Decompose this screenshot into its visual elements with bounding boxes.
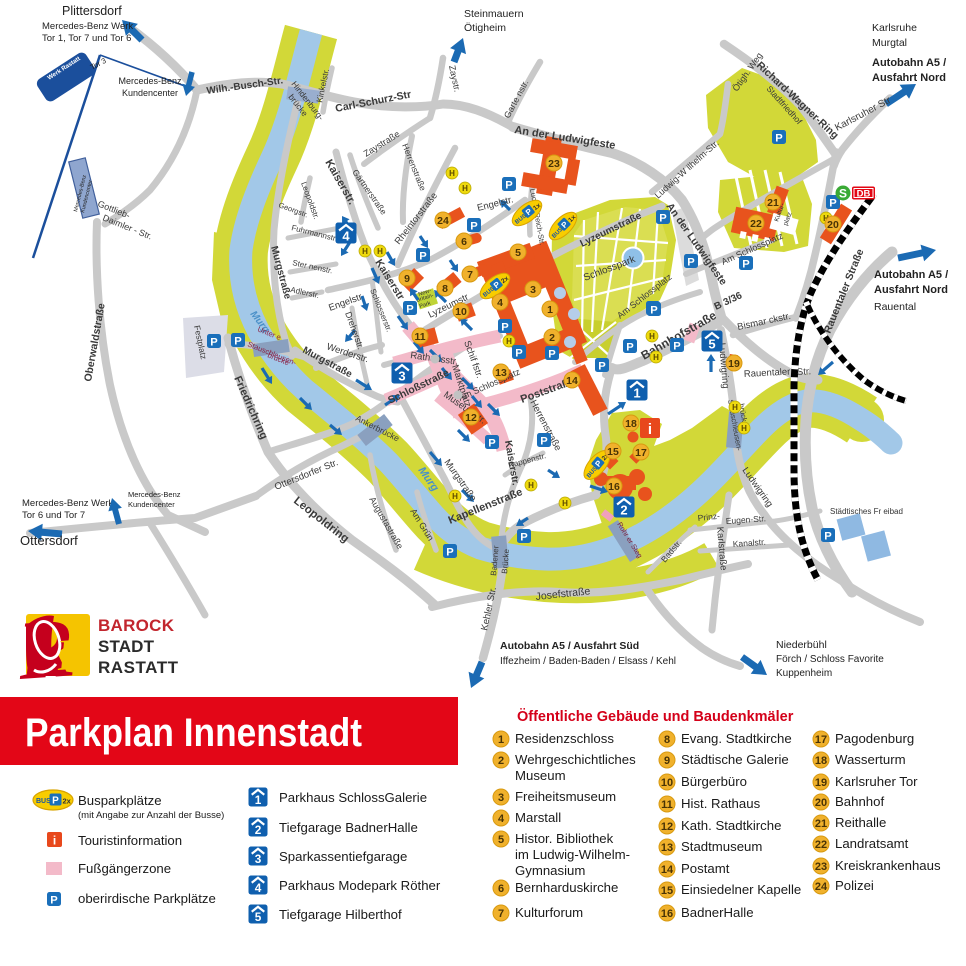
svg-text:17: 17 (815, 734, 827, 746)
svg-text:Ötigheim: Ötigheim (464, 22, 506, 34)
svg-text:P: P (419, 250, 427, 262)
svg-text:Marstall: Marstall (515, 810, 561, 825)
svg-text:21: 21 (767, 197, 779, 209)
svg-text:Mercedes-Benz: Mercedes-Benz (118, 76, 182, 86)
svg-text:P: P (829, 197, 837, 209)
svg-text:Plittersdorf: Plittersdorf (62, 4, 122, 18)
svg-text:Mercedes-Benz Werk: Mercedes-Benz Werk (42, 21, 133, 32)
svg-text:Städtisches Fr eibad: Städtisches Fr eibad (830, 507, 903, 516)
svg-text:Karlsruher Tor: Karlsruher Tor (835, 774, 918, 789)
svg-text:P: P (548, 348, 556, 360)
svg-text:18: 18 (625, 418, 637, 430)
svg-text:Steinmauern: Steinmauern (464, 8, 524, 20)
svg-text:Landratsamt: Landratsamt (835, 836, 909, 851)
svg-text:2: 2 (549, 332, 555, 344)
svg-text:Wasserturm: Wasserturm (835, 752, 906, 767)
svg-text:Postamt: Postamt (681, 861, 730, 876)
svg-text:Ausfahrt Nord: Ausfahrt Nord (872, 72, 946, 84)
svg-text:5: 5 (708, 337, 715, 352)
svg-text:8: 8 (442, 283, 448, 295)
svg-text:Kuppenheim: Kuppenheim (776, 668, 832, 679)
svg-text:1: 1 (633, 386, 640, 401)
svg-text:1: 1 (255, 793, 262, 807)
svg-text:BUS: BUS (36, 798, 51, 805)
svg-text:4: 4 (498, 813, 505, 825)
svg-text:14: 14 (661, 864, 674, 876)
svg-text:P: P (775, 132, 783, 144)
svg-text:Tiefgarage BadnerHalle: Tiefgarage BadnerHalle (279, 820, 418, 835)
svg-text:H: H (732, 403, 738, 412)
svg-text:16: 16 (661, 908, 673, 920)
svg-text:P: P (52, 796, 59, 807)
svg-text:1: 1 (498, 734, 504, 746)
svg-text:11: 11 (414, 331, 425, 343)
svg-text:Residenzschloss: Residenzschloss (515, 731, 614, 746)
svg-text:12: 12 (661, 821, 673, 833)
svg-text:Busparkplätze: Busparkplätze (78, 793, 162, 808)
svg-text:Autobahn A5 /: Autobahn A5 / (872, 57, 946, 69)
svg-text:P: P (742, 258, 750, 270)
svg-text:P: P (234, 335, 242, 347)
svg-text:Polizei: Polizei (835, 878, 874, 893)
svg-text:Tor 1, Tor 7 und Tor 6: Tor 1, Tor 7 und Tor 6 (42, 33, 131, 44)
svg-text:16: 16 (608, 481, 620, 493)
svg-text:Förch / Schloss Favorite: Förch / Schloss Favorite (776, 654, 884, 665)
svg-text:H: H (362, 247, 368, 256)
svg-text:P: P (520, 531, 528, 543)
svg-text:RASTATT: RASTATT (98, 658, 179, 677)
svg-text:Mercedes-Benz: Mercedes-Benz (128, 490, 181, 499)
svg-text:Sparkassentiefgarage: Sparkassentiefgarage (279, 849, 407, 864)
svg-text:H: H (452, 492, 458, 501)
svg-text:6: 6 (461, 236, 467, 248)
svg-text:P: P (598, 360, 606, 372)
svg-text:P: P (540, 435, 548, 447)
svg-text:P: P (446, 546, 454, 558)
svg-text:Parkhaus SchlossGalerie: Parkhaus SchlossGalerie (279, 790, 427, 805)
svg-text:P: P (650, 304, 658, 316)
svg-text:3: 3 (398, 369, 405, 384)
svg-text:23: 23 (815, 861, 827, 873)
svg-text:H: H (377, 247, 383, 256)
svg-text:3: 3 (530, 284, 536, 296)
svg-text:Gymnasium: Gymnasium (515, 863, 585, 878)
svg-text:Rauental: Rauental (874, 301, 916, 313)
svg-text:8: 8 (664, 734, 670, 746)
svg-text:P: P (50, 894, 58, 906)
svg-text:15: 15 (607, 446, 619, 458)
svg-text:Bahnhof: Bahnhof (835, 794, 884, 809)
svg-text:im Ludwig-Wilhelm-: im Ludwig-Wilhelm- (515, 847, 630, 862)
svg-text:Karlsruhe: Karlsruhe (872, 22, 917, 34)
svg-text:Kundencenter: Kundencenter (128, 500, 175, 509)
svg-text:7: 7 (467, 269, 473, 281)
svg-text:17: 17 (635, 447, 647, 459)
svg-text:Tiefgarage Hilberthof: Tiefgarage Hilberthof (279, 907, 402, 922)
svg-text:9: 9 (664, 755, 670, 767)
svg-text:11: 11 (661, 799, 673, 811)
svg-text:3: 3 (498, 792, 504, 804)
svg-text:P: P (470, 220, 478, 232)
svg-text:H: H (462, 184, 468, 193)
svg-text:13: 13 (661, 842, 673, 854)
svg-text:3: 3 (255, 852, 262, 866)
svg-text:DB: DB (857, 189, 871, 200)
svg-text:Niederbühl: Niederbühl (776, 639, 827, 651)
svg-text:5: 5 (498, 834, 504, 846)
svg-text:Murgtal: Murgtal (872, 37, 907, 49)
svg-text:4: 4 (497, 297, 503, 309)
svg-text:6: 6 (498, 883, 504, 895)
svg-text:Autobahn A5 /: Autobahn A5 / (874, 269, 948, 281)
svg-text:12: 12 (465, 412, 477, 424)
svg-text:H: H (528, 481, 534, 490)
svg-text:i: i (53, 834, 56, 848)
svg-text:Kreiskrankenhaus: Kreiskrankenhaus (835, 858, 941, 873)
svg-text:19: 19 (815, 777, 827, 789)
svg-text:Histor. Bibliothek: Histor. Bibliothek (515, 831, 614, 846)
svg-text:P: P (824, 530, 832, 542)
svg-text:Fußgängerzone: Fußgängerzone (78, 861, 171, 876)
svg-text:Bernharduskirche: Bernharduskirche (515, 880, 618, 895)
svg-text:Kundencenter: Kundencenter (122, 88, 178, 98)
svg-text:Mercedes-Benz Werk: Mercedes-Benz Werk (22, 498, 113, 509)
svg-text:P: P (406, 303, 414, 315)
svg-text:2: 2 (255, 823, 262, 837)
svg-text:H: H (449, 169, 455, 178)
svg-text:Reithalle: Reithalle (835, 815, 886, 830)
svg-text:19: 19 (728, 358, 740, 370)
svg-text:4: 4 (342, 229, 350, 244)
svg-text:7: 7 (498, 908, 504, 920)
svg-text:Parkplan Innenstadt: Parkplan Innenstadt (25, 711, 362, 755)
svg-text:P: P (687, 256, 695, 268)
svg-text:Evang. Stadtkirche: Evang. Stadtkirche (681, 731, 792, 746)
svg-text:Stadtmuseum: Stadtmuseum (681, 839, 762, 854)
svg-text:P: P (210, 336, 218, 348)
svg-text:2x: 2x (63, 797, 72, 806)
svg-text:Ottersdorf: Ottersdorf (20, 533, 78, 548)
svg-text:20: 20 (815, 797, 827, 809)
svg-text:5: 5 (255, 910, 262, 924)
svg-text:Museum: Museum (515, 768, 566, 783)
svg-text:Parkhaus Modepark Röther: Parkhaus Modepark Röther (279, 878, 441, 893)
svg-text:2: 2 (620, 503, 627, 518)
svg-text:20: 20 (827, 219, 839, 231)
svg-text:Hist. Rathaus: Hist. Rathaus (681, 796, 761, 811)
svg-text:BAROCK: BAROCK (98, 616, 175, 635)
svg-text:22: 22 (815, 839, 827, 851)
svg-text:i: i (648, 421, 652, 438)
svg-text:2: 2 (498, 755, 504, 767)
svg-text:Einsiedelner Kapelle: Einsiedelner Kapelle (681, 882, 801, 897)
svg-text:STADT: STADT (98, 637, 155, 656)
svg-text:15: 15 (661, 885, 673, 897)
svg-text:23: 23 (548, 158, 560, 170)
svg-text:Städtische Galerie: Städtische Galerie (681, 752, 789, 767)
svg-text:22: 22 (750, 218, 762, 230)
svg-text:Iffezheim / Baden-Baden / Elsa: Iffezheim / Baden-Baden / Elsass / Kehl (500, 656, 676, 667)
svg-text:14: 14 (566, 375, 578, 387)
svg-text:18: 18 (815, 755, 827, 767)
svg-text:21: 21 (815, 818, 827, 830)
svg-text:24: 24 (437, 215, 449, 227)
svg-text:P: P (488, 437, 496, 449)
svg-text:oberirdische Parkplätze: oberirdische Parkplätze (78, 891, 216, 906)
svg-text:H: H (741, 424, 747, 433)
svg-text:Freiheitsmuseum: Freiheitsmuseum (515, 789, 616, 804)
svg-text:S: S (839, 187, 847, 201)
svg-text:Kulturforum: Kulturforum (515, 905, 583, 920)
svg-text:Wehrgeschichtliches: Wehrgeschichtliches (515, 752, 636, 767)
svg-text:Pagodenburg: Pagodenburg (835, 731, 914, 746)
svg-text:Str.: Str. (797, 366, 812, 378)
svg-text:10: 10 (661, 777, 673, 789)
svg-text:H: H (653, 353, 659, 362)
svg-text:10: 10 (455, 306, 467, 318)
svg-text:9: 9 (404, 273, 410, 285)
svg-text:P: P (515, 347, 523, 359)
svg-text:P: P (673, 340, 681, 352)
svg-text:Bürgerbüro: Bürgerbüro (681, 774, 747, 789)
svg-text:P: P (505, 179, 513, 191)
svg-text:1: 1 (547, 304, 553, 316)
svg-text:24: 24 (815, 881, 828, 893)
svg-text:Ausfahrt Nord: Ausfahrt Nord (874, 284, 948, 296)
svg-text:(mit Angabe zur Anzahl der Bus: (mit Angabe zur Anzahl der Busse) (78, 810, 224, 821)
svg-text:H: H (506, 337, 512, 346)
svg-text:R: R (54, 629, 85, 680)
svg-text:P: P (626, 341, 634, 353)
svg-text:BadnerHalle: BadnerHalle (681, 905, 754, 920)
svg-text:H: H (649, 332, 655, 341)
svg-text:Öffentliche Gebäude und Bauden: Öffentliche Gebäude und Baudenkmäler (517, 708, 794, 725)
svg-text:Kath. Stadtkirche: Kath. Stadtkirche (681, 818, 781, 833)
svg-text:H: H (562, 499, 568, 508)
svg-text:Tor 6 und Tor 7: Tor 6 und Tor 7 (22, 510, 85, 521)
svg-text:5: 5 (515, 247, 521, 259)
svg-text:P: P (659, 212, 667, 224)
svg-text:13: 13 (495, 367, 507, 379)
svg-text:P: P (501, 321, 509, 333)
svg-text:Autobahn A5 / Ausfahrt Süd: Autobahn A5 / Ausfahrt Süd (500, 640, 639, 652)
svg-text:Touristinformation: Touristinformation (78, 833, 182, 848)
svg-text:4: 4 (255, 881, 262, 895)
